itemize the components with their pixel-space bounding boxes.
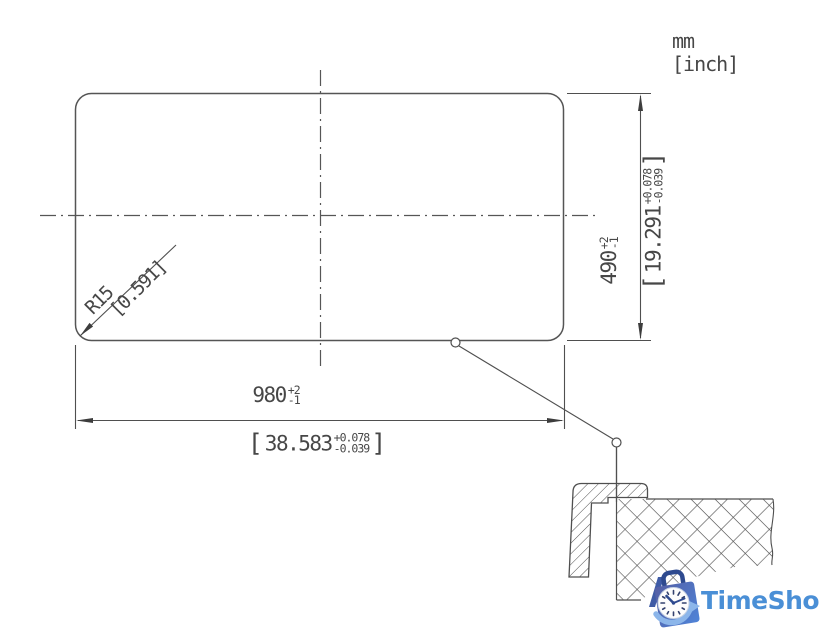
width-dimension-inch: [ 38.583 +0.078 -0.039 ]	[248, 429, 385, 458]
width-dimension-mm: 980 +2 -1	[252, 383, 299, 407]
bracket-open: [	[639, 277, 668, 290]
height-inch-value: 19.291	[641, 206, 665, 273]
width-inch-value: 38.583	[265, 431, 332, 455]
height-dimension-mm: 490 +2 -1	[597, 237, 621, 284]
arrow-down-icon	[638, 323, 643, 340]
bracket-close: ]	[371, 429, 384, 458]
leader-node-icon	[612, 438, 621, 447]
units-secondary: [inch]	[672, 53, 738, 76]
clock-icon	[658, 588, 689, 619]
logo-wordmark: TimeShop	[701, 586, 821, 615]
arrow-up-icon	[638, 94, 643, 111]
arrow-right-icon	[547, 418, 564, 423]
drawing-linework	[0, 0, 821, 640]
height-inch-tolerance: +0.078 -0.039	[643, 169, 664, 205]
countertop-section	[617, 499, 774, 600]
units-primary: mm	[672, 30, 738, 53]
bracket-open: [	[248, 429, 261, 458]
bracket-close: ]	[639, 154, 668, 167]
arrow-left-icon	[76, 418, 93, 423]
height-tolerance: +2 -1	[599, 237, 620, 249]
leader-node-icon	[451, 338, 460, 347]
width-inch-tolerance: +0.078 -0.039	[334, 433, 370, 454]
height-value: 490	[597, 251, 621, 284]
technical-drawing-canvas: mm [inch] 980 +2 -1 [ 38.583 +0.078 -0.0…	[0, 0, 821, 640]
height-dimension-inch: [ 19.291 +0.078 -0.039 ]	[639, 154, 668, 291]
units-note: mm [inch]	[672, 30, 738, 76]
width-tolerance: +2 -1	[288, 385, 300, 406]
section-leader	[451, 338, 621, 600]
cutout-rectangle	[76, 94, 564, 341]
arrow-corner-icon	[80, 323, 93, 336]
width-value: 980	[252, 383, 285, 407]
